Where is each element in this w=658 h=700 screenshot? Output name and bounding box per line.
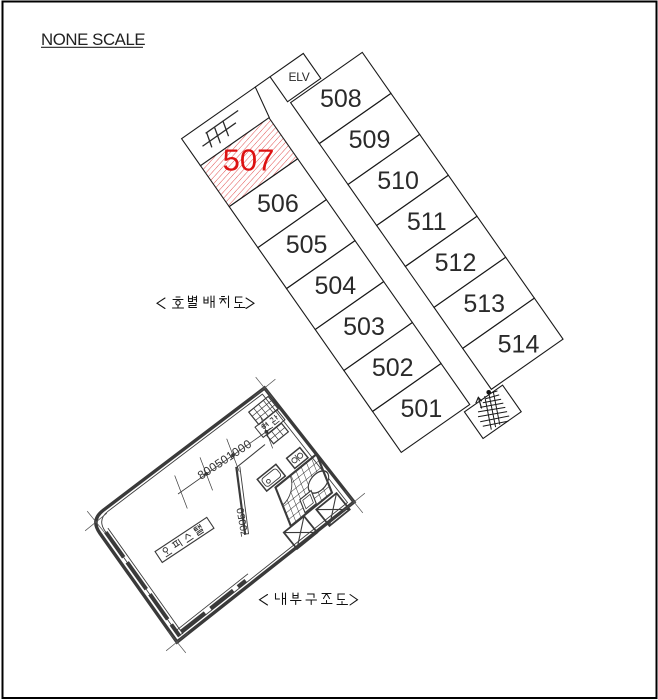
svg-text:510: 510 (377, 167, 419, 195)
svg-text:502: 502 (372, 354, 414, 382)
svg-text:ELV: ELV (289, 70, 310, 84)
svg-text:507: 507 (223, 143, 275, 178)
svg-text:513: 513 (463, 290, 505, 318)
svg-text:514: 514 (498, 331, 540, 359)
svg-text:508: 508 (320, 85, 362, 113)
svg-text:501: 501 (401, 395, 443, 423)
svg-text:509: 509 (349, 126, 391, 154)
svg-text:504: 504 (314, 272, 356, 300)
svg-text:NONE SCALE: NONE SCALE (41, 30, 145, 49)
svg-text:511: 511 (407, 208, 447, 236)
svg-text:512: 512 (435, 249, 477, 277)
svg-text:503: 503 (343, 313, 385, 341)
svg-text:506: 506 (257, 190, 299, 218)
svg-text:505: 505 (286, 231, 328, 259)
